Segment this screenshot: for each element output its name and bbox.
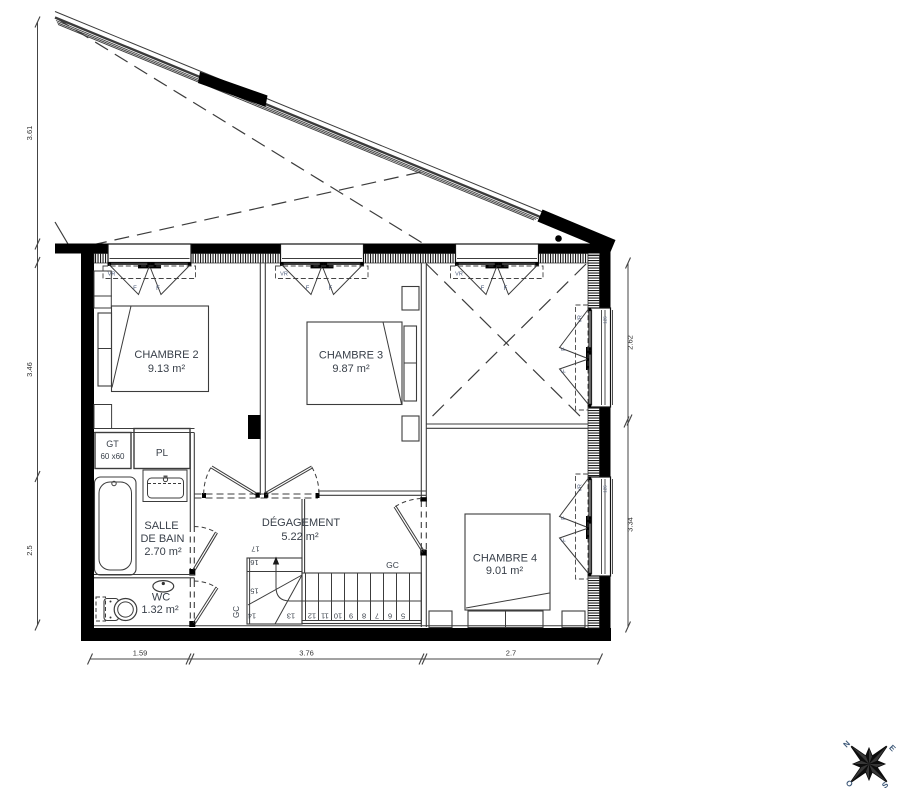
svg-text:2.7: 2.7 (506, 649, 516, 658)
svg-text:F: F (504, 286, 508, 292)
svg-text:3.46: 3.46 (25, 362, 34, 377)
svg-text:F: F (481, 286, 485, 292)
svg-text:15: 15 (250, 587, 258, 596)
svg-text:14: 14 (248, 612, 256, 621)
svg-text:2.62: 2.62 (626, 335, 635, 350)
svg-text:CHAMBRE 3: CHAMBRE 3 (319, 350, 383, 362)
svg-text:8: 8 (362, 612, 366, 621)
svg-text:9: 9 (349, 612, 353, 621)
svg-text:16: 16 (250, 558, 258, 567)
svg-text:11: 11 (321, 612, 329, 621)
svg-text:F: F (562, 516, 568, 520)
svg-text:12: 12 (308, 612, 316, 621)
svg-text:5.22 m²: 5.22 m² (281, 531, 319, 543)
svg-text:F: F (156, 286, 160, 292)
svg-text:F: F (562, 538, 568, 542)
svg-text:60 x60: 60 x60 (100, 452, 125, 461)
svg-text:17: 17 (251, 545, 259, 554)
svg-text:2.5: 2.5 (25, 545, 34, 555)
svg-text:F: F (562, 347, 568, 351)
svg-text:7: 7 (375, 612, 379, 621)
svg-text:F: F (329, 286, 333, 292)
svg-text:GC: GC (232, 606, 241, 618)
svg-text:1.32 m²: 1.32 m² (141, 604, 179, 616)
svg-text:2.70 m²: 2.70 m² (144, 546, 182, 558)
svg-text:6: 6 (388, 612, 392, 621)
svg-text:VR: VR (455, 272, 463, 278)
svg-text:CHAMBRE 4: CHAMBRE 4 (473, 553, 537, 565)
svg-text:DÉGAGEMENT: DÉGAGEMENT (262, 516, 341, 529)
svg-text:F: F (562, 369, 568, 373)
svg-text:GC: GC (386, 560, 399, 570)
svg-text:CHAMBRE 2: CHAMBRE 2 (134, 349, 198, 361)
svg-text:9.01 m²: 9.01 m² (486, 565, 524, 577)
svg-text:13: 13 (287, 612, 295, 621)
svg-text:PL: PL (156, 448, 169, 459)
svg-text:125: 125 (603, 316, 608, 324)
svg-text:3.61: 3.61 (25, 126, 34, 141)
svg-text:9.13 m²: 9.13 m² (148, 363, 186, 375)
svg-text:F: F (306, 286, 310, 292)
svg-text:3.76: 3.76 (299, 649, 314, 658)
svg-text:10: 10 (334, 612, 342, 621)
svg-text:9.87 m²: 9.87 m² (332, 363, 370, 375)
svg-text:F: F (133, 286, 137, 292)
svg-text:5: 5 (401, 612, 405, 621)
svg-text:SALLE: SALLE (144, 520, 178, 532)
svg-text:GT: GT (106, 439, 119, 449)
svg-text:VR: VR (280, 272, 288, 278)
svg-text:1.59: 1.59 (133, 649, 148, 658)
svg-text:WC: WC (152, 592, 170, 604)
svg-text:DE BAIN: DE BAIN (140, 533, 184, 545)
svg-text:3.34: 3.34 (626, 517, 635, 532)
svg-text:125: 125 (603, 485, 608, 493)
